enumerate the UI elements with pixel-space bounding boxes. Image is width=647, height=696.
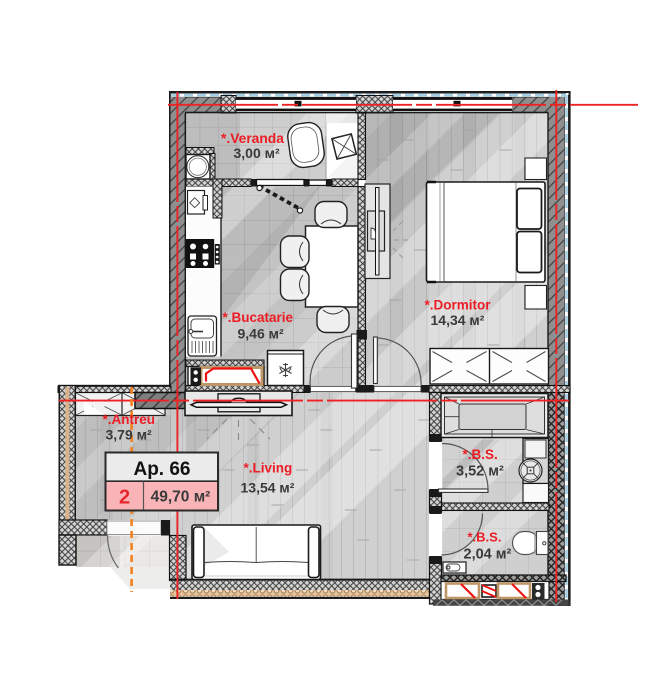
- svg-text:*.Antreu: *.Antreu: [103, 412, 156, 427]
- svg-text:*.B.S.: *.B.S.: [468, 530, 502, 545]
- svg-text:*.Bucatarie: *.Bucatarie: [223, 310, 294, 325]
- svg-text:*.Living: *.Living: [244, 461, 293, 476]
- svg-text:3,00 м²: 3,00 м²: [234, 145, 280, 161]
- svg-text:*.Dormitor: *.Dormitor: [425, 298, 492, 313]
- svg-text:*.B.S.: *.B.S.: [463, 447, 498, 462]
- svg-text:9,46 м²: 9,46 м²: [238, 326, 284, 342]
- svg-text:*.Veranda: *.Veranda: [221, 131, 284, 146]
- svg-text:Ap. 66: Ap. 66: [133, 459, 190, 480]
- svg-text:13,54 м²: 13,54 м²: [241, 480, 295, 496]
- svg-text:3,79 м²: 3,79 м²: [106, 427, 152, 443]
- svg-text:2,04 м²: 2,04 м²: [464, 547, 512, 563]
- svg-text:3,52 м²: 3,52 м²: [456, 464, 504, 480]
- svg-text:2: 2: [119, 487, 130, 509]
- svg-text:49,70 м²: 49,70 м²: [151, 489, 211, 506]
- svg-text:14,34 м²: 14,34 м²: [431, 312, 485, 328]
